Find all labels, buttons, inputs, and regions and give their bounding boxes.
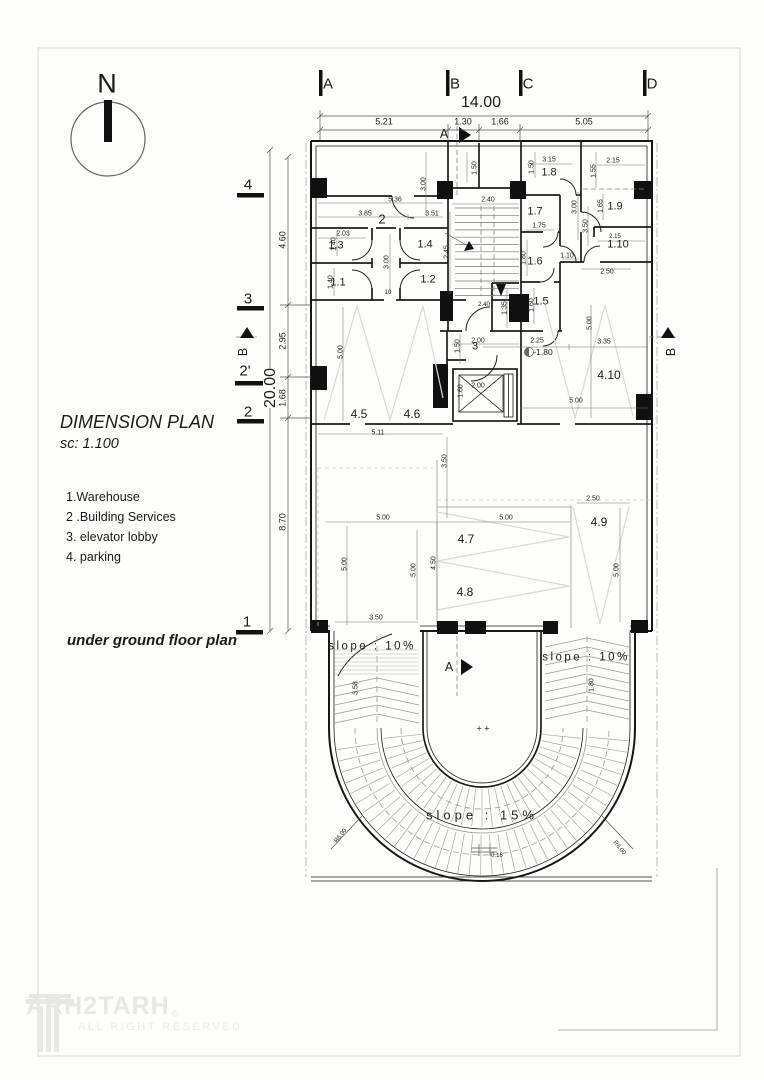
slope-label: slope : 15% bbox=[426, 809, 538, 822]
dim-label: 1.55 bbox=[591, 164, 598, 178]
room-label: 3 bbox=[472, 342, 478, 353]
grid-number: 2 bbox=[244, 405, 252, 420]
dim-label: 5.11 bbox=[371, 430, 384, 437]
room-label: 4.6 bbox=[404, 408, 421, 420]
watermark-tagline: ALL RIGHT RESERVED bbox=[78, 1021, 286, 1033]
legend-item: 1.Warehouse bbox=[66, 490, 176, 504]
grid-ticks bbox=[235, 70, 647, 635]
dim-label: 5.00 bbox=[376, 515, 390, 522]
dim-label: 3.00 bbox=[572, 200, 579, 214]
dim-label: 2.25 bbox=[530, 338, 544, 345]
dim-label: 3.00 bbox=[421, 177, 428, 191]
dim-label: 1.60 bbox=[458, 384, 465, 398]
section-letter: A bbox=[445, 661, 453, 674]
floor-plan-caption: under ground floor plan bbox=[67, 632, 237, 649]
dim-label: 2.45 bbox=[444, 245, 451, 259]
dim-label: 3.15 bbox=[542, 157, 556, 164]
page-title: DIMENSION PLAN bbox=[60, 412, 214, 433]
slope-label: slope : 10% bbox=[542, 652, 630, 664]
dim-label: 3.35 bbox=[597, 339, 611, 346]
dim-label: 0.16 bbox=[491, 853, 503, 859]
level-marker-icon bbox=[525, 348, 534, 357]
dim-label: 1.35 bbox=[502, 301, 509, 315]
dim-label: 2.50 bbox=[586, 496, 600, 503]
dim-label: 2.40 bbox=[481, 197, 495, 204]
dim-label: 4.60 bbox=[279, 231, 288, 249]
room-label: 1.8 bbox=[541, 168, 556, 179]
legend-item: 4. parking bbox=[66, 550, 176, 564]
drawing-sheet: N DIMENSION PLAN sc: 1.100 1.Warehouse2 … bbox=[0, 0, 764, 1080]
dim-label: 5.05 bbox=[575, 118, 593, 127]
grid-number: 1 bbox=[243, 615, 251, 630]
watermark: ARH2TARH © ALL RIGHT RESERVED bbox=[26, 994, 286, 1033]
dim-label: 10 bbox=[385, 290, 392, 296]
room-label: 1.6 bbox=[527, 257, 542, 268]
room-label: 1.4 bbox=[417, 240, 432, 251]
titleblock-frame-line bbox=[558, 868, 717, 1030]
overall-dim-label: 14.00 bbox=[461, 95, 501, 111]
dim-label: 3.00 bbox=[384, 255, 391, 269]
room-label: 1.9 bbox=[607, 202, 622, 213]
dim-label: 5.00 bbox=[342, 557, 349, 571]
dim-label: 8.70 bbox=[279, 513, 288, 531]
room-label: 1.10 bbox=[607, 240, 628, 251]
dim-label: 5.00 bbox=[569, 398, 583, 405]
dim-label: 3.50 bbox=[442, 454, 449, 468]
north-label: N bbox=[97, 71, 117, 98]
grid-letter: C bbox=[523, 77, 534, 92]
room-label: 1.3 bbox=[328, 241, 343, 252]
room-label: 4.5 bbox=[351, 408, 368, 420]
parking-markings bbox=[324, 305, 633, 624]
dim-label: 1.66 bbox=[491, 118, 509, 127]
dim-label: 5.00 bbox=[499, 515, 513, 522]
legend: 1.Warehouse2 .Building Services3. elevat… bbox=[66, 490, 176, 570]
slope-label: slope : 10% bbox=[328, 641, 416, 653]
dim-label: 3.85 bbox=[358, 211, 372, 218]
dim-label: 1.30 bbox=[454, 118, 472, 127]
legend-item: 2 .Building Services bbox=[66, 510, 176, 524]
room-label: 1.7 bbox=[527, 207, 542, 218]
dim-label: 3.50 bbox=[369, 615, 383, 622]
dim-label: 1.50 bbox=[529, 160, 536, 174]
section-letter: B bbox=[237, 348, 250, 356]
dim-label: 1.75 bbox=[532, 223, 546, 230]
legend-item: 3. elevator lobby bbox=[66, 530, 176, 544]
copyright-symbol: © bbox=[172, 1009, 179, 1019]
dim-label: 5.36 bbox=[388, 197, 402, 204]
dim-label: 1.68 bbox=[279, 389, 288, 407]
section-letter: A bbox=[440, 128, 448, 141]
dim-label: 2.95 bbox=[279, 332, 288, 350]
grid-number: 3 bbox=[244, 292, 252, 307]
dim-label: 5.00 bbox=[338, 345, 345, 359]
plan-mark: + + bbox=[476, 725, 489, 734]
room-label: 1.1 bbox=[330, 278, 345, 289]
dim-label: 2.50 bbox=[600, 269, 614, 276]
section-letter: B bbox=[665, 348, 678, 356]
ramp bbox=[311, 631, 652, 881]
grid-number: 4 bbox=[244, 178, 252, 193]
dim-label: 1.50 bbox=[472, 161, 479, 175]
dim-label: 5.00 bbox=[587, 316, 594, 330]
scale-note: sc: 1.100 bbox=[60, 436, 119, 452]
room-label: 1.2 bbox=[420, 275, 435, 286]
dim-label: 1.10 bbox=[560, 253, 574, 260]
dim-label: 2.03 bbox=[336, 231, 350, 238]
grid-letter: D bbox=[647, 77, 658, 92]
grid-letter: B bbox=[450, 77, 460, 92]
construction-lines bbox=[318, 468, 650, 628]
room-label: 1.5 bbox=[533, 297, 548, 308]
dim-label: 5.00 bbox=[614, 563, 621, 577]
grid-number: 2' bbox=[239, 364, 250, 379]
dim-label: 2.40 bbox=[478, 302, 490, 308]
dim-label: 1.50 bbox=[455, 339, 462, 353]
dim-label: 5.21 bbox=[375, 118, 393, 127]
grid-letter: A bbox=[323, 77, 333, 92]
dim-label: 3.58 bbox=[353, 681, 360, 695]
room-label: 2 bbox=[378, 213, 385, 226]
column-logo-icon bbox=[26, 994, 76, 1056]
dim-label: 3.51 bbox=[425, 211, 439, 218]
room-label: 4.10 bbox=[597, 369, 620, 381]
room-label: 4.9 bbox=[591, 516, 608, 528]
room-label: 4.7 bbox=[458, 533, 475, 545]
dim-label: 1.65 bbox=[598, 199, 605, 213]
dim-label: 1.80 bbox=[589, 678, 596, 692]
plan-mark: -1.80 bbox=[533, 348, 552, 357]
dim-label: 4.50 bbox=[431, 556, 438, 570]
dim-label: 5.00 bbox=[411, 563, 418, 577]
dim-label: 2.15 bbox=[606, 158, 620, 165]
room-label: 4.8 bbox=[457, 586, 474, 598]
dim-label: 3.50 bbox=[583, 219, 590, 233]
dim-label: 2.00 bbox=[471, 383, 485, 390]
north-arrow-icon bbox=[71, 100, 145, 176]
